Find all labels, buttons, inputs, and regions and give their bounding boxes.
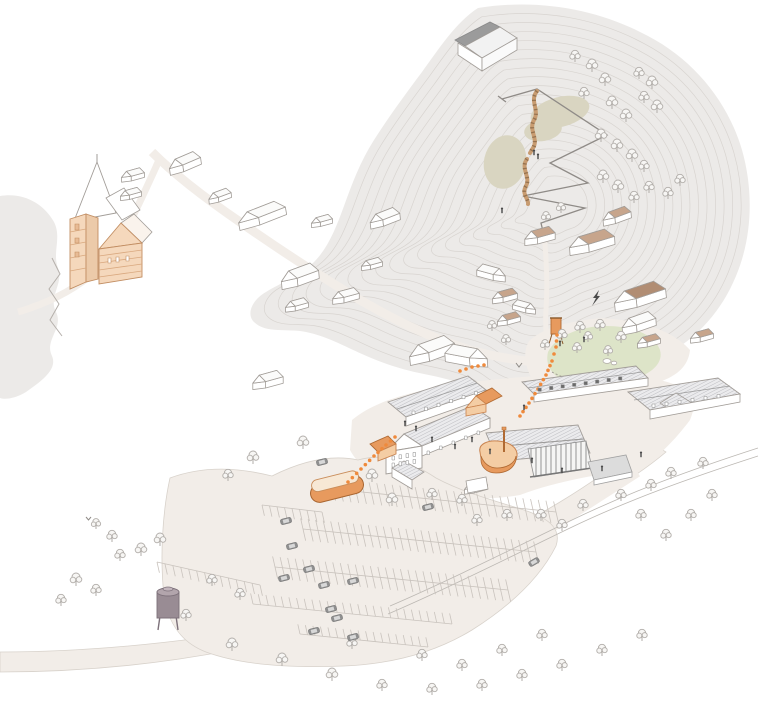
tree-crown	[120, 553, 125, 558]
tree	[377, 679, 387, 691]
tree-crown	[661, 533, 666, 538]
tree-crown	[603, 174, 609, 180]
tree	[297, 436, 309, 449]
tree-crown	[207, 578, 212, 583]
person-head	[531, 458, 533, 460]
tree	[135, 543, 147, 556]
person-head	[415, 426, 417, 428]
window	[477, 431, 480, 435]
house	[253, 370, 283, 389]
tree-crown	[572, 346, 576, 350]
tree-crown	[303, 440, 309, 446]
tree-crown	[649, 185, 654, 190]
tree-crown	[432, 492, 437, 497]
tree-crown	[186, 613, 191, 618]
tree-crown	[377, 683, 382, 688]
tree-crown	[597, 648, 602, 653]
tree	[707, 489, 717, 501]
tree-crown	[652, 80, 658, 86]
window	[717, 395, 720, 398]
route-dot	[530, 397, 534, 401]
tree-crown	[517, 673, 522, 678]
tree	[646, 479, 656, 491]
tree-crown	[663, 191, 668, 196]
tree-crown	[620, 113, 626, 119]
tree-crown	[600, 323, 605, 328]
tree-crown	[557, 663, 562, 668]
person-head	[471, 437, 473, 439]
tree-crown	[427, 492, 432, 497]
village-masterplan-axonometric	[0, 0, 760, 706]
tree-crown	[352, 641, 357, 646]
parking-stall	[538, 500, 540, 511]
window	[462, 395, 465, 398]
tree-crown	[70, 577, 76, 583]
window	[450, 399, 453, 402]
tree	[537, 629, 547, 641]
window	[573, 383, 576, 386]
tree-crown	[612, 184, 618, 190]
route-dot	[364, 463, 368, 467]
tree-crown	[56, 598, 61, 603]
tree-crown	[562, 663, 567, 668]
tree-crown	[562, 333, 567, 338]
tree	[497, 644, 507, 656]
tree-crown	[482, 683, 487, 688]
tree-crown	[618, 184, 624, 190]
route-dot	[464, 367, 468, 371]
tree	[636, 509, 646, 521]
person-head	[533, 150, 535, 152]
tree-crown	[427, 687, 432, 692]
route-dot	[351, 476, 355, 480]
tree-crown	[545, 343, 549, 347]
tree-crown	[636, 513, 641, 518]
tree-crown	[639, 71, 644, 76]
route-dot	[518, 414, 522, 418]
window	[619, 377, 622, 380]
tree-crown	[616, 335, 621, 340]
window	[665, 402, 668, 405]
person-head	[454, 444, 456, 446]
route-dot	[376, 451, 380, 455]
window	[427, 451, 430, 455]
tree-crown	[366, 473, 372, 479]
tree-crown	[326, 672, 332, 678]
tree-crown	[680, 178, 685, 183]
tree-crown	[477, 518, 482, 523]
tree-crown	[691, 513, 696, 518]
route-dot	[555, 333, 559, 337]
route-dot	[544, 373, 548, 377]
person-head	[561, 468, 563, 470]
tree-crown	[616, 493, 621, 498]
tree-crown	[651, 483, 656, 488]
tree-crown	[492, 324, 496, 328]
tree-crown	[634, 195, 639, 200]
window	[412, 411, 415, 414]
route-dot	[533, 392, 537, 396]
window	[392, 463, 395, 467]
person-head	[640, 452, 642, 454]
person-head	[601, 466, 603, 468]
tree-crown	[675, 178, 680, 183]
tree-crown	[621, 335, 626, 340]
route-dot	[470, 365, 474, 369]
person-head	[489, 449, 491, 451]
tree-crown	[639, 164, 644, 169]
tree-crown	[91, 588, 96, 593]
tree	[698, 457, 708, 469]
tree-crown	[639, 95, 644, 100]
tree-crown	[546, 215, 550, 219]
tree-crown	[181, 613, 186, 618]
tree-crown	[556, 206, 560, 210]
tree-crown	[606, 100, 612, 106]
parking-stall	[531, 499, 533, 510]
tree-crown	[580, 325, 585, 330]
tree-crown	[372, 473, 378, 479]
tree-crown	[703, 461, 708, 466]
tree-crown	[542, 633, 547, 638]
route-dot	[393, 435, 397, 439]
tree-crown	[579, 91, 584, 96]
tree-crown	[115, 553, 120, 558]
tree-crown	[626, 113, 632, 119]
tree-crown	[671, 471, 676, 476]
tree	[597, 644, 607, 656]
tree	[557, 519, 567, 531]
window	[413, 452, 416, 456]
tree-crown	[666, 533, 671, 538]
house	[208, 188, 232, 204]
tree-crown	[96, 588, 101, 593]
tree-crown	[646, 80, 652, 86]
route-dot	[548, 364, 552, 368]
tree-crown	[457, 663, 462, 668]
route-dot	[368, 459, 372, 463]
tree-crown	[595, 323, 600, 328]
tree-crown	[135, 547, 141, 553]
tree	[557, 659, 567, 671]
route-dot	[527, 401, 531, 405]
tree-crown	[223, 473, 228, 478]
house	[122, 168, 145, 182]
tree-crown	[507, 513, 512, 518]
tree-crown	[644, 164, 649, 169]
tree-crown	[487, 324, 491, 328]
tree-crown	[462, 663, 467, 668]
tree-crown	[91, 522, 95, 526]
window	[550, 386, 553, 389]
tree-crown	[541, 513, 546, 518]
tree-crown	[557, 523, 562, 528]
tree-crown	[570, 54, 575, 59]
person-head	[404, 421, 406, 423]
house	[168, 151, 203, 176]
tree-crown	[282, 657, 288, 663]
tree-crown	[602, 648, 607, 653]
tree-crown	[540, 343, 544, 347]
route-dot	[539, 383, 543, 387]
person-head	[559, 341, 561, 343]
tree	[91, 584, 101, 596]
tree	[517, 669, 527, 681]
tree-crown	[644, 185, 649, 190]
tree-crown	[522, 673, 527, 678]
tree-crown	[422, 653, 427, 658]
tree	[417, 649, 427, 661]
tree	[107, 530, 117, 542]
tree-crown	[562, 523, 567, 528]
route-dot	[542, 378, 546, 382]
tree-crown	[226, 642, 232, 648]
tree-crown	[584, 91, 589, 96]
tree-crown	[536, 513, 541, 518]
route-dot	[546, 369, 550, 373]
tree-crown	[597, 174, 603, 180]
tree-crown	[141, 547, 147, 553]
tree-crown	[629, 195, 634, 200]
window	[475, 392, 478, 395]
tree-crown	[578, 503, 583, 508]
church-tower-side	[86, 214, 98, 282]
church-spire	[74, 162, 116, 221]
route-dot	[552, 352, 556, 356]
tree-crown	[276, 657, 282, 663]
tree-crown	[477, 683, 482, 688]
tree-crown	[707, 493, 712, 498]
route-dot	[372, 454, 376, 458]
tree	[326, 668, 338, 681]
tree-crown	[599, 77, 605, 83]
window	[704, 396, 707, 399]
tree-crown	[154, 537, 160, 543]
tree-crown	[472, 518, 477, 523]
tree-crown	[506, 338, 510, 342]
tree-crown	[583, 503, 588, 508]
tree-crown	[332, 672, 338, 678]
window	[406, 454, 409, 458]
tree-crown	[686, 513, 691, 518]
route-dot	[458, 369, 462, 373]
tree-crown	[386, 497, 392, 503]
tree-crown	[561, 206, 565, 210]
tree	[91, 519, 100, 529]
tree-crown	[501, 338, 505, 342]
tree	[637, 629, 647, 641]
window	[392, 456, 395, 460]
window	[607, 378, 610, 381]
tree-crown	[462, 498, 467, 503]
tree-crown	[253, 455, 259, 461]
tree-crown	[651, 104, 657, 110]
tree-crown	[608, 349, 612, 353]
route-dot	[555, 339, 559, 343]
tree-crown	[297, 440, 303, 446]
tree	[115, 549, 125, 561]
tree-crown	[644, 95, 649, 100]
tree-crown	[457, 498, 462, 503]
tree-crown	[537, 633, 542, 638]
tree-crown	[657, 104, 663, 110]
route-dot	[476, 364, 480, 368]
person-head	[431, 437, 433, 439]
tree-crown	[76, 577, 82, 583]
window	[437, 403, 440, 406]
route-dot	[380, 447, 384, 451]
tree-crown	[497, 648, 502, 653]
route-dot	[346, 480, 350, 484]
tree-crown	[592, 63, 598, 69]
tree-crown	[247, 455, 253, 461]
tree-crown	[228, 473, 233, 478]
tree-crown	[61, 598, 66, 603]
tree	[457, 659, 467, 671]
route-dot	[554, 345, 558, 349]
tree-crown	[392, 497, 398, 503]
house	[312, 214, 333, 227]
tree-crown	[601, 133, 607, 139]
window	[678, 400, 681, 403]
tree-crown	[617, 143, 623, 149]
tree-crown	[417, 653, 422, 658]
window	[691, 398, 694, 401]
tree-crown	[112, 534, 117, 539]
route-dot	[359, 467, 363, 471]
tree-crown	[240, 592, 245, 597]
tree-crown	[595, 133, 601, 139]
tree-crown	[160, 537, 166, 543]
person-head	[583, 337, 585, 339]
tree	[477, 679, 487, 691]
tree-crown	[642, 633, 647, 638]
person-head	[523, 405, 525, 407]
window	[399, 455, 402, 459]
tree-crown	[432, 687, 437, 692]
window	[465, 436, 468, 440]
window	[406, 461, 409, 465]
tree-crown	[502, 648, 507, 653]
route-dot	[521, 410, 525, 414]
church	[49, 154, 152, 336]
tree	[661, 529, 671, 541]
person-head	[537, 154, 539, 156]
window	[652, 404, 655, 407]
route-dot	[389, 439, 393, 443]
tree-crown	[502, 513, 507, 518]
tree-crown	[577, 346, 581, 350]
tree-crown	[612, 100, 618, 106]
person-head	[501, 208, 503, 210]
tree-crown	[603, 349, 607, 353]
tree-crown	[634, 71, 639, 76]
tree-crown	[212, 578, 217, 583]
route-dot	[482, 363, 486, 367]
tree-crown	[626, 153, 632, 159]
tree-crown	[712, 493, 717, 498]
tree-crown	[588, 335, 592, 339]
parking-stall	[515, 497, 517, 508]
tree-crown	[96, 522, 100, 526]
tree-crown	[235, 592, 240, 597]
tree-crown	[586, 63, 592, 69]
tree-crown	[347, 641, 352, 646]
tree-crown	[632, 153, 638, 159]
window	[440, 446, 443, 450]
window	[538, 388, 541, 391]
tree-crown	[666, 471, 671, 476]
tree-crown	[575, 325, 580, 330]
window	[413, 459, 416, 463]
tree	[70, 573, 82, 586]
house	[236, 200, 288, 231]
window	[584, 382, 587, 385]
window	[596, 380, 599, 383]
parking-stall	[157, 562, 159, 573]
tree-crown	[382, 683, 387, 688]
tree-crown	[637, 633, 642, 638]
route-dot	[550, 359, 554, 363]
tree-crown	[646, 483, 651, 488]
church-nave-wall	[99, 243, 142, 284]
tree-crown	[232, 642, 238, 648]
window	[399, 462, 402, 466]
tree-crown	[107, 534, 112, 539]
tree-crown	[668, 191, 673, 196]
window	[425, 407, 428, 410]
tree-crown	[641, 513, 646, 518]
tree-crown	[575, 54, 580, 59]
parking-stall	[523, 498, 525, 509]
tree	[686, 509, 696, 521]
tree	[56, 594, 66, 606]
route-dot	[355, 472, 359, 476]
window	[561, 385, 564, 388]
tree	[247, 451, 259, 464]
tree-crown	[698, 461, 703, 466]
tree-crown	[621, 493, 626, 498]
tree-crown	[541, 215, 545, 219]
tree-crown	[611, 143, 617, 149]
site-plan-illustration	[0, 0, 760, 706]
tree-crown	[605, 77, 611, 83]
route-dot	[384, 443, 388, 447]
tree	[427, 683, 437, 695]
